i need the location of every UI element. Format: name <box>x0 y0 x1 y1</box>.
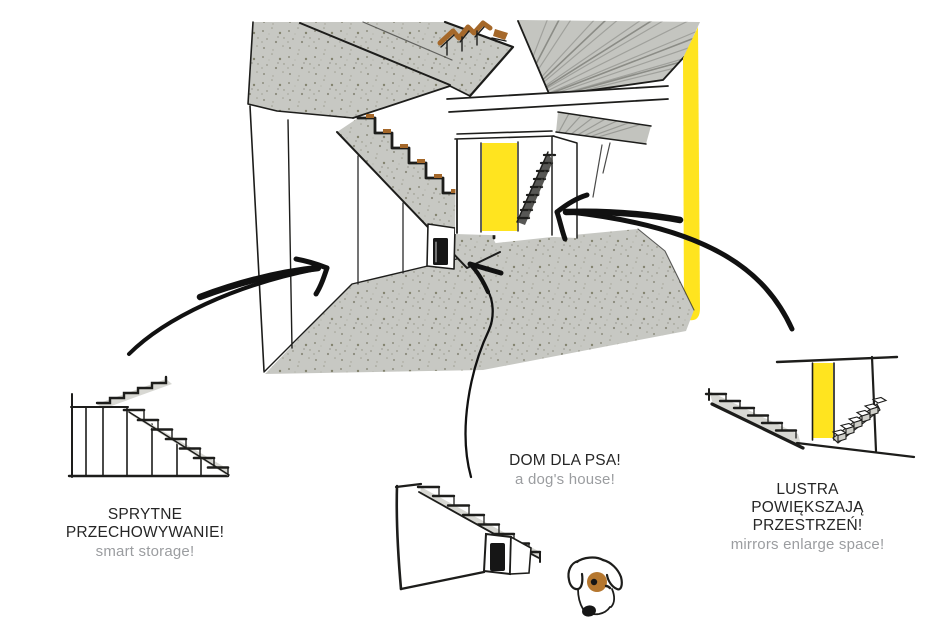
reflected-3d-steps <box>833 398 886 444</box>
mirror-panel-yellow <box>813 363 833 438</box>
storage-stairs-sketch <box>69 377 229 477</box>
dog-house-caption: DOM DLA PSA! a dog's house! <box>485 452 645 489</box>
dog-house-caption-line1: DOM DLA PSA! <box>485 452 645 470</box>
storage-arrow <box>129 259 327 354</box>
storage-caption-line1: SPRYTNE <box>50 506 240 524</box>
storage-caption-subtitle: smart storage! <box>50 542 240 561</box>
dog-head-sketch <box>568 558 621 618</box>
storage-caption-line2: PRZECHOWYWANIE! <box>50 524 240 542</box>
mirrors-caption-subtitle: mirrors enlarge space! <box>725 535 890 554</box>
mirror-doorway <box>455 131 610 238</box>
mirror-stairs-sketch <box>706 357 914 457</box>
illustration-canvas: SPRYTNE PRZECHOWYWANIE! smart storage! D… <box>0 0 950 634</box>
mirrors-caption-line3: PRZESTRZEŃ! <box>725 517 890 535</box>
mirrors-caption: LUSTRA POWIĘKSZAJĄ PRZESTRZEŃ! mirrors e… <box>725 481 890 554</box>
mirrors-caption-line2: POWIĘKSZAJĄ <box>725 499 890 517</box>
yellow-wall-stripe <box>683 27 700 320</box>
yellow-mirror-door <box>482 143 517 231</box>
left-wall <box>250 106 292 371</box>
main-dog-house-door <box>427 224 455 269</box>
storage-caption: SPRYTNE PRZECHOWYWANIE! smart storage! <box>50 506 240 561</box>
dog-house-stairs-sketch <box>396 484 540 589</box>
main-interior-sketch <box>248 18 700 374</box>
dog-house-caption-subtitle: a dog's house! <box>485 470 645 489</box>
mirrors-caption-line1: LUSTRA <box>725 481 890 499</box>
